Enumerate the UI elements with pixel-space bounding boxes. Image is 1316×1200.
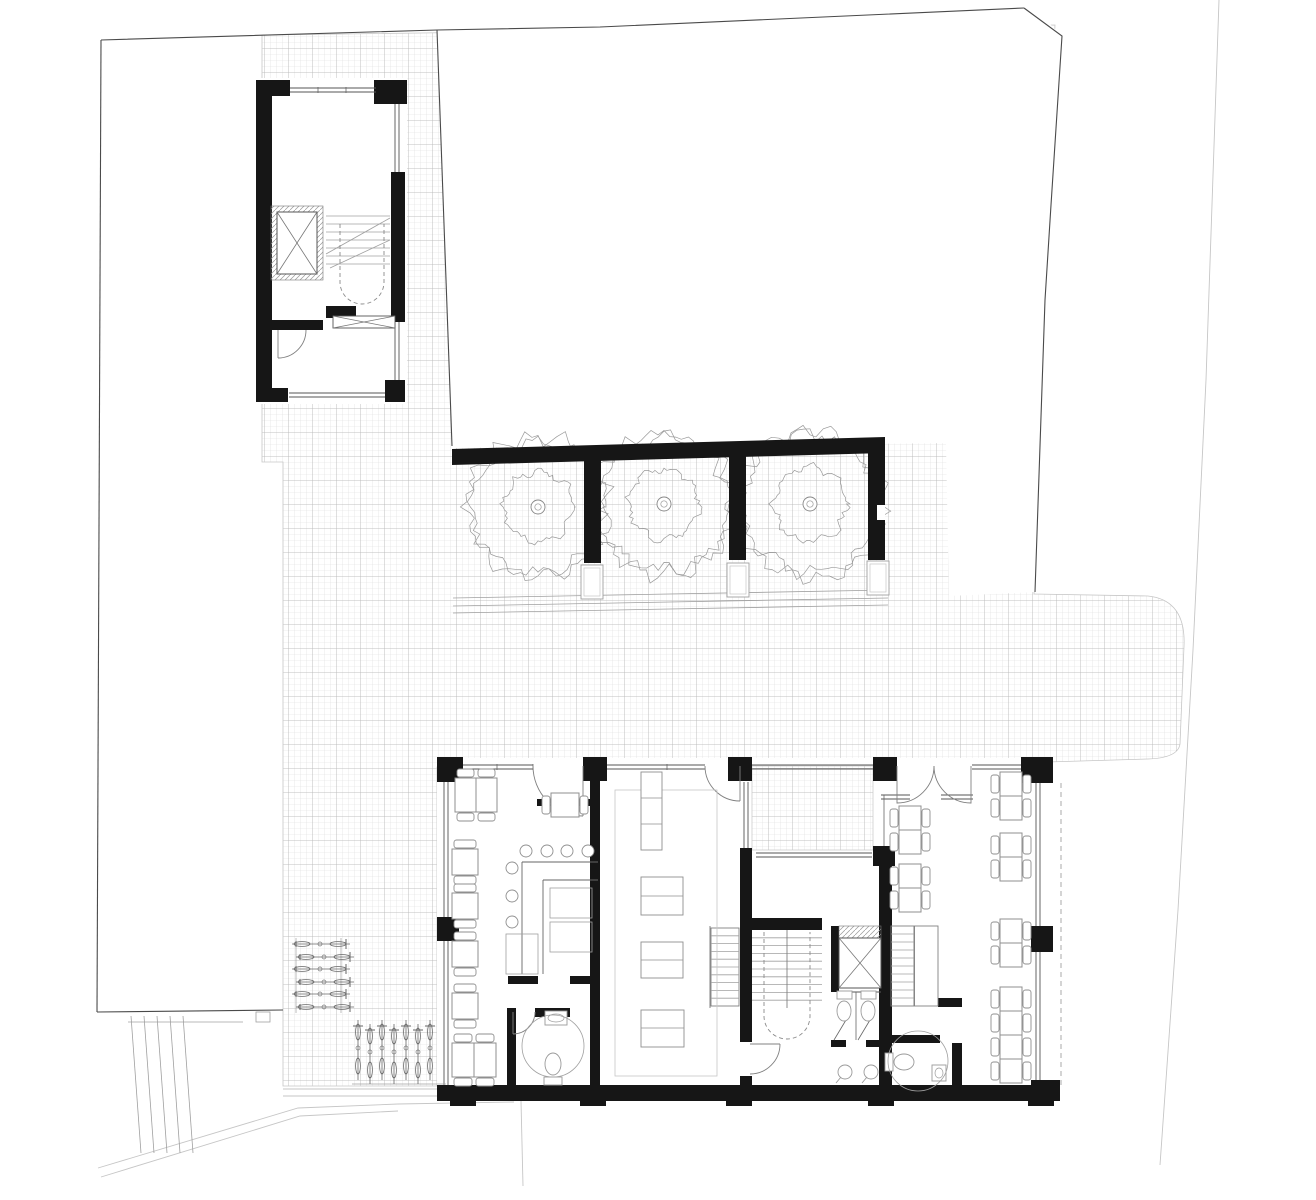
floor-plan-sheet bbox=[0, 0, 1316, 1200]
floor-plan-drawing bbox=[0, 0, 1316, 1200]
